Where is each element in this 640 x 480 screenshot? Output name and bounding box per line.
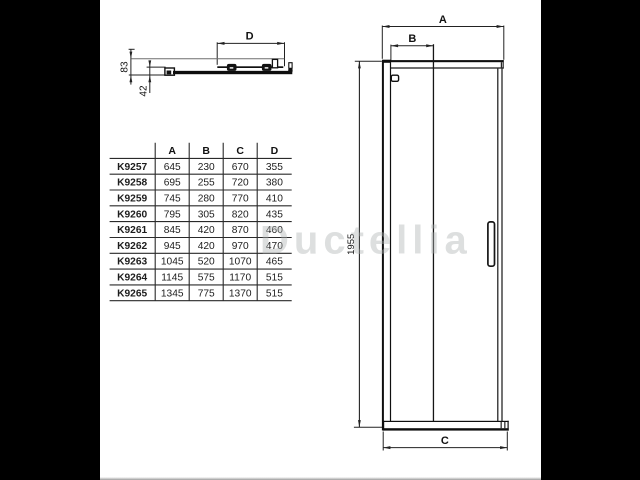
- svg-text:K9258: K9258: [117, 178, 147, 189]
- svg-text:770: 770: [232, 194, 249, 205]
- svg-text:D: D: [246, 31, 254, 43]
- svg-text:1145: 1145: [161, 273, 183, 284]
- svg-text:C: C: [236, 145, 244, 157]
- svg-text:83: 83: [120, 61, 131, 73]
- svg-text:K9261: K9261: [117, 225, 147, 236]
- svg-text:B: B: [408, 33, 416, 45]
- svg-text:420: 420: [198, 225, 215, 236]
- svg-text:380: 380: [266, 178, 283, 189]
- svg-text:Ductellia: Ductellia: [260, 219, 472, 263]
- svg-text:255: 255: [198, 178, 215, 189]
- svg-text:280: 280: [198, 194, 215, 205]
- svg-text:745: 745: [164, 194, 181, 205]
- svg-text:C: C: [441, 435, 449, 447]
- svg-text:945: 945: [164, 241, 181, 252]
- svg-text:820: 820: [232, 209, 249, 220]
- svg-text:775: 775: [198, 288, 215, 299]
- svg-text:645: 645: [164, 162, 181, 173]
- svg-text:520: 520: [198, 257, 215, 268]
- svg-text:D: D: [271, 145, 279, 157]
- svg-text:355: 355: [266, 162, 283, 173]
- svg-text:A: A: [168, 145, 176, 157]
- svg-text:K9259: K9259: [117, 194, 147, 205]
- svg-text:1370: 1370: [229, 288, 252, 299]
- svg-text:1170: 1170: [229, 273, 251, 284]
- svg-text:970: 970: [232, 241, 249, 252]
- svg-text:795: 795: [164, 209, 181, 220]
- svg-text:42: 42: [139, 85, 150, 97]
- svg-text:K9263: K9263: [117, 257, 147, 268]
- svg-text:1070: 1070: [229, 257, 252, 268]
- svg-text:K9262: K9262: [117, 241, 147, 252]
- svg-text:670: 670: [232, 162, 249, 173]
- svg-text:695: 695: [164, 178, 181, 189]
- svg-text:515: 515: [266, 288, 283, 299]
- svg-text:420: 420: [198, 241, 215, 252]
- svg-text:1345: 1345: [161, 288, 184, 299]
- svg-text:B: B: [202, 145, 210, 157]
- svg-text:410: 410: [266, 194, 283, 205]
- svg-text:K9265: K9265: [117, 288, 147, 299]
- svg-text:845: 845: [164, 225, 181, 236]
- svg-text:K9260: K9260: [117, 209, 147, 220]
- svg-text:720: 720: [232, 178, 249, 189]
- svg-text:K9264: K9264: [117, 273, 147, 284]
- svg-text:1045: 1045: [161, 257, 184, 268]
- svg-text:870: 870: [232, 225, 249, 236]
- svg-text:230: 230: [198, 162, 215, 173]
- svg-text:575: 575: [198, 273, 215, 284]
- svg-text:A: A: [439, 14, 447, 26]
- svg-text:515: 515: [266, 273, 283, 284]
- svg-text:305: 305: [198, 209, 215, 220]
- svg-text:K9257: K9257: [117, 162, 147, 173]
